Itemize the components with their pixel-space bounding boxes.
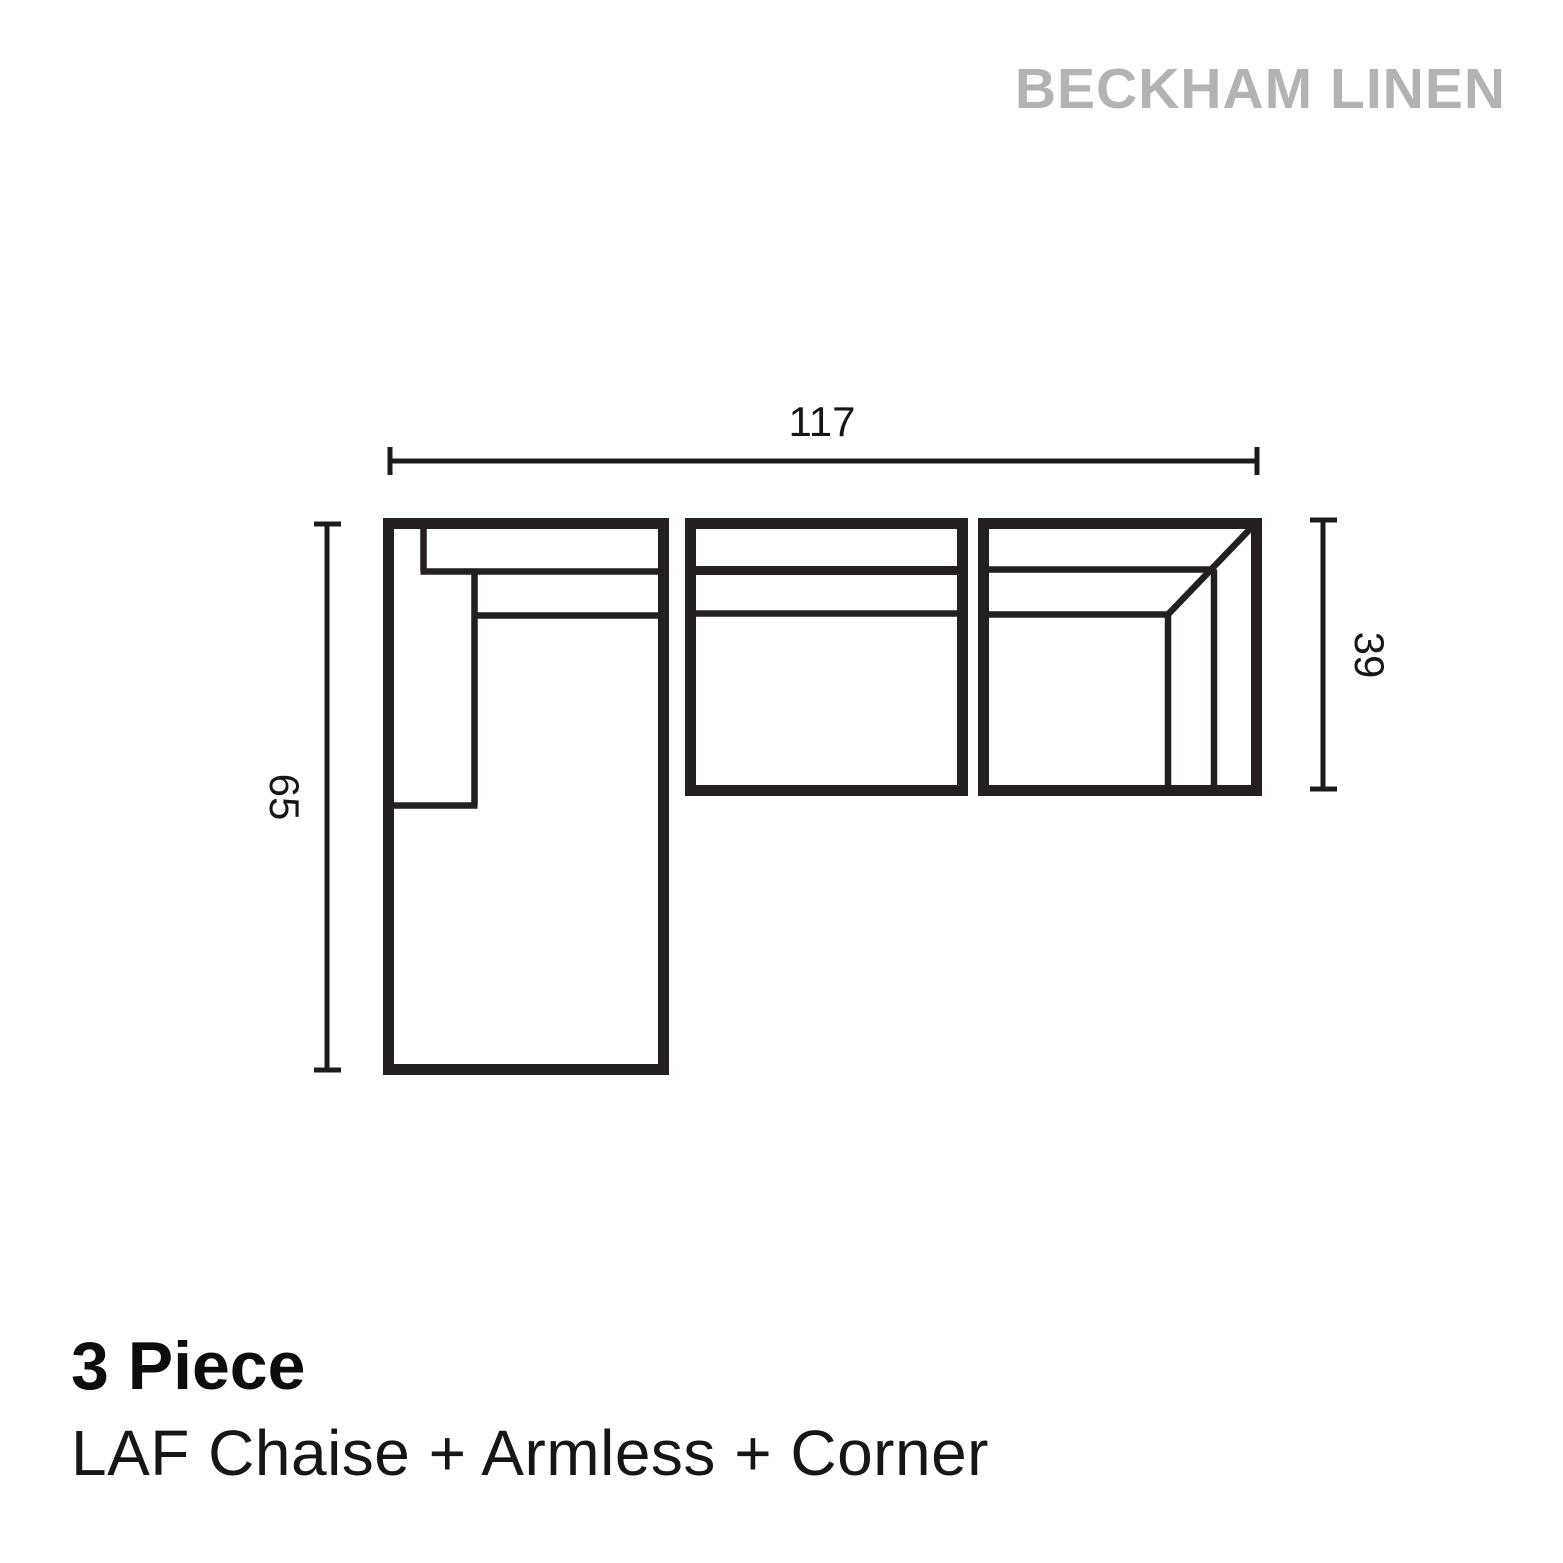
product-configuration: LAF Chaise + Armless + Corner — [71, 1416, 989, 1490]
spec-sheet-page: BECKHAM LINEN 117 65 39 — [0, 0, 1563, 1563]
armless-outline — [691, 524, 963, 791]
product-title: 3 Piece — [71, 1327, 305, 1405]
laf-chaise-outline — [389, 524, 664, 1070]
overall-width-dimension: 117 — [390, 398, 1257, 475]
corner-depth-dimension: 39 — [1310, 520, 1393, 789]
corner-depth-value: 39 — [1346, 632, 1393, 679]
chaise-depth-dimension: 65 — [261, 524, 341, 1070]
armless-piece — [691, 524, 963, 791]
corner-piece — [984, 524, 1257, 791]
overall-width-value: 117 — [789, 398, 856, 445]
chaise-depth-value: 65 — [261, 774, 308, 821]
laf-chaise-piece — [389, 520, 664, 1070]
